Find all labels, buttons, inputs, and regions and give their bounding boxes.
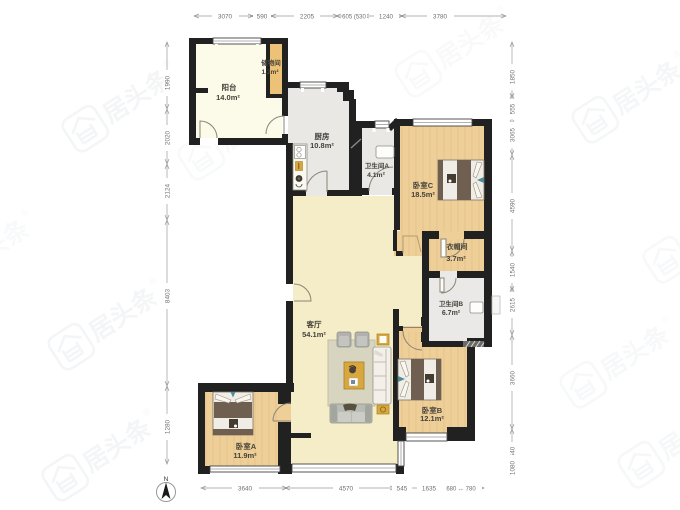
svg-text:1990: 1990 bbox=[165, 75, 172, 90]
svg-text:3780: 3780 bbox=[433, 14, 448, 21]
svg-text:14.0m²: 14.0m² bbox=[216, 93, 240, 102]
svg-text:2020: 2020 bbox=[165, 130, 172, 145]
svg-text:2615: 2615 bbox=[510, 297, 517, 312]
svg-text:10.8m²: 10.8m² bbox=[310, 141, 334, 150]
svg-text:N: N bbox=[164, 476, 169, 483]
svg-text:8403: 8403 bbox=[165, 288, 172, 303]
svg-text:4570: 4570 bbox=[339, 486, 354, 493]
svg-text:衣帽间: 衣帽间 bbox=[447, 242, 468, 251]
svg-text:1850: 1850 bbox=[510, 69, 517, 84]
svg-text:1635: 1635 bbox=[422, 486, 437, 493]
svg-text:4590: 4590 bbox=[510, 198, 517, 213]
svg-text:卧室C: 卧室C bbox=[413, 180, 434, 190]
svg-text:590: 590 bbox=[257, 14, 268, 21]
svg-text:1.2m²: 1.2m² bbox=[262, 69, 280, 76]
svg-text:680 ↔ 780: 680 ↔ 780 bbox=[446, 487, 476, 493]
svg-text:12.1m²: 12.1m² bbox=[420, 414, 444, 423]
svg-text:605 (530: 605 (530 bbox=[342, 15, 366, 21]
svg-text:11.9m²: 11.9m² bbox=[233, 451, 257, 460]
svg-text:客厅: 客厅 bbox=[306, 319, 322, 329]
svg-text:3.7m²: 3.7m² bbox=[446, 254, 466, 263]
svg-text:3070: 3070 bbox=[218, 14, 233, 21]
svg-text:1080: 1080 bbox=[510, 460, 517, 475]
svg-text:3065: 3065 bbox=[510, 127, 517, 142]
svg-text:厨房: 厨房 bbox=[315, 131, 330, 141]
svg-text:3640: 3640 bbox=[238, 486, 253, 493]
svg-text:2124: 2124 bbox=[165, 183, 172, 198]
svg-text:18.5m²: 18.5m² bbox=[411, 190, 435, 199]
svg-text:3660: 3660 bbox=[510, 370, 517, 385]
svg-text:6.7m²: 6.7m² bbox=[442, 310, 461, 317]
svg-text:储物间: 储物间 bbox=[260, 58, 281, 67]
svg-text:1240: 1240 bbox=[379, 14, 394, 21]
svg-text:卫生间B: 卫生间B bbox=[439, 299, 464, 308]
svg-text:1280: 1280 bbox=[165, 419, 172, 434]
svg-text:卧室A: 卧室A bbox=[236, 441, 257, 451]
svg-text:545: 545 bbox=[397, 486, 408, 493]
svg-text:2205: 2205 bbox=[300, 14, 315, 21]
svg-text:54.1m²: 54.1m² bbox=[302, 330, 326, 339]
svg-text:阳台: 阳台 bbox=[222, 82, 237, 92]
svg-text:1540: 1540 bbox=[510, 262, 517, 277]
svg-text:4.1m²: 4.1m² bbox=[367, 172, 385, 179]
svg-text:卫生间A: 卫生间A bbox=[365, 161, 390, 170]
svg-text:555: 555 bbox=[510, 103, 517, 114]
